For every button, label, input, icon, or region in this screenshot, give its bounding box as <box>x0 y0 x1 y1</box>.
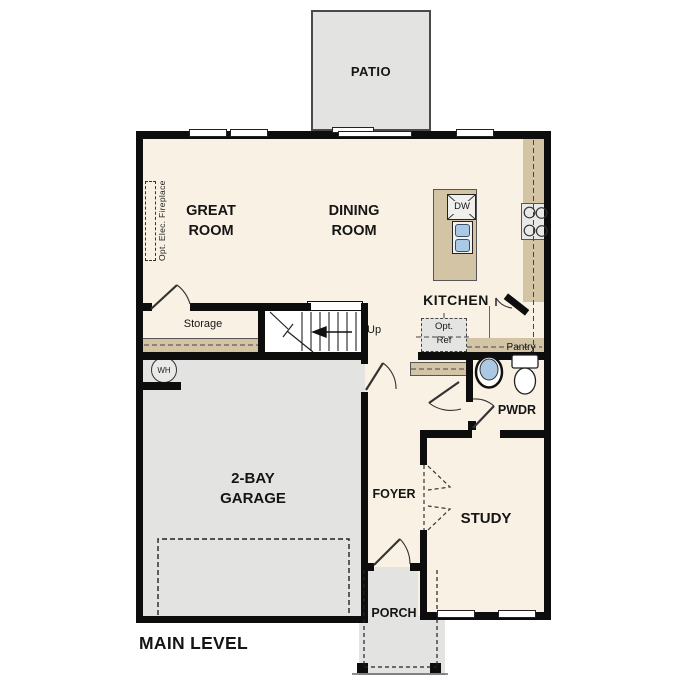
wall-garage-right-lower <box>361 392 368 623</box>
wall-garage-top <box>136 352 368 360</box>
wall-garage-right-upper <box>361 352 368 364</box>
window-study-2 <box>498 610 536 618</box>
wall-left <box>136 131 143 623</box>
wall-storage-stairs-top <box>190 303 311 311</box>
main-level-title: MAIN LEVEL <box>139 632 309 656</box>
water-heater: WH <box>151 357 177 383</box>
sink-basin-bottom <box>455 239 470 252</box>
foyer-label: FOYER <box>364 486 424 503</box>
wall-garage-bottom <box>136 616 368 623</box>
window-study-1 <box>437 610 475 618</box>
wall-storage-stub <box>143 303 152 311</box>
stair-railing <box>307 301 363 311</box>
sliding-door-panel-2 <box>338 131 412 137</box>
wall-powder-left <box>466 360 473 402</box>
floorplan-canvas: WH <box>0 0 687 687</box>
window-great-room-1 <box>189 129 227 137</box>
wall-storage-stairs-divider <box>258 303 265 360</box>
patio-label: PATIO <box>311 63 431 81</box>
wall-study-left-upper <box>420 437 427 465</box>
dishwasher-label: DW <box>450 201 474 214</box>
storage-label: Storage <box>160 317 246 332</box>
opt-ref-label: Opt. Ref <box>421 320 467 348</box>
porch-post-right <box>430 663 441 673</box>
window-kitchen <box>456 129 494 137</box>
wall-front-stub-right <box>410 563 420 571</box>
kitchen-label: KITCHEN <box>416 291 496 310</box>
wall-study-top-left <box>420 430 472 438</box>
stairs-area <box>265 311 361 352</box>
hall-bench <box>410 362 467 376</box>
wall-study-top-right <box>500 430 551 438</box>
wall-right <box>544 131 551 620</box>
foyer-area <box>365 356 420 567</box>
up-label: Up <box>367 323 391 338</box>
pantry-shelf-line <box>489 306 544 338</box>
wall-wh-alcove <box>143 382 181 390</box>
garage-label: 2-BAY GARAGE <box>193 469 313 510</box>
hall-powder-study-area <box>418 356 548 616</box>
porch-label: PORCH <box>366 605 422 622</box>
storage-shelf <box>143 338 259 352</box>
wall-powder-door-stub <box>468 421 476 430</box>
opt-elec-fireplace-label: Opt. Elec. Fireplace <box>157 172 170 270</box>
powder-label: PWDR <box>491 402 543 419</box>
wall-front-stub-left <box>361 563 374 571</box>
study-label: STUDY <box>446 509 526 529</box>
pantry-label: Pantry <box>495 341 547 355</box>
porch-post-left <box>357 663 368 673</box>
window-great-room-2 <box>230 129 268 137</box>
dining-room-label: DINING ROOM <box>294 202 414 241</box>
sink-basin-top <box>455 224 470 237</box>
